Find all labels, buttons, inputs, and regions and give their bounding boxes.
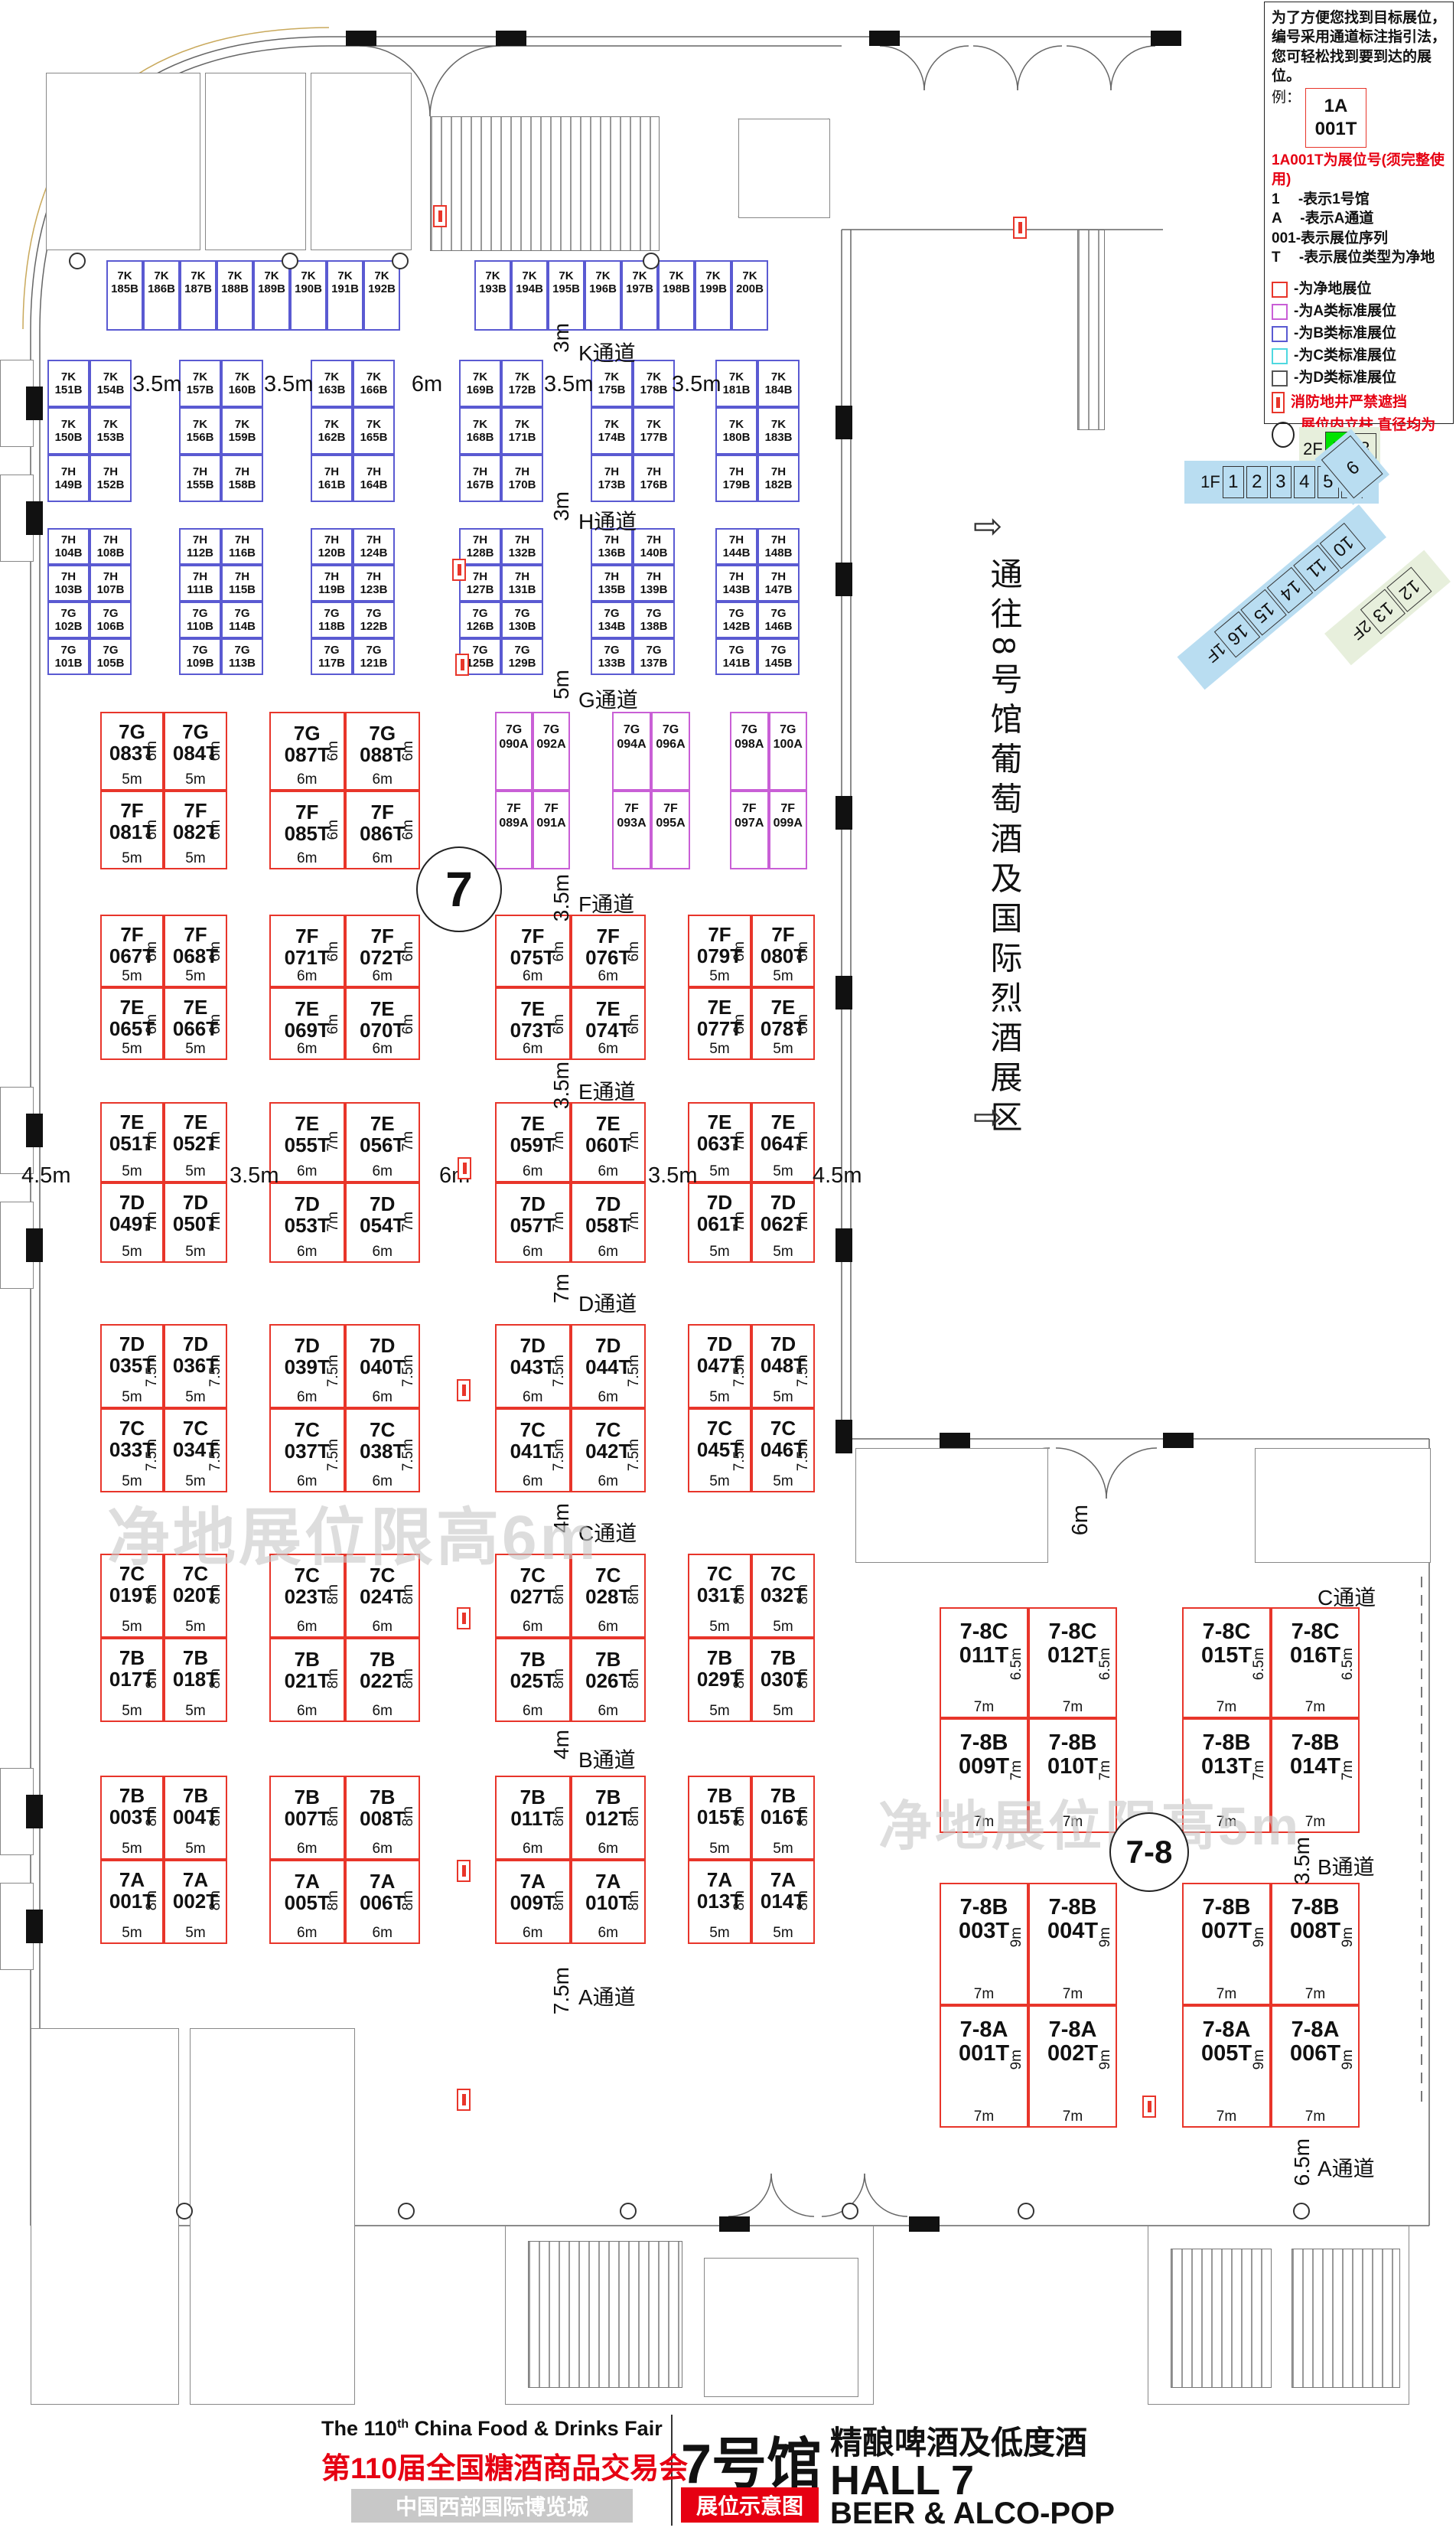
- fair-title-en: The 110th China Food & Drinks Fair: [321, 2417, 658, 2441]
- venue-name: 中国西部国际博览城: [351, 2489, 633, 2523]
- title-divider: [0, 0, 1456, 2531]
- hall7-floor-plan: 7K185B7K186B7K187B7K188B7K189B7K190B7K19…: [0, 0, 1456, 2531]
- fair-title-cn: 第110届全国糖酒商品交易会: [321, 2445, 658, 2487]
- hall-theme-en: BEER & ALCO-POP: [830, 2497, 1115, 2531]
- plan-tag: 展位示意图: [681, 2487, 819, 2523]
